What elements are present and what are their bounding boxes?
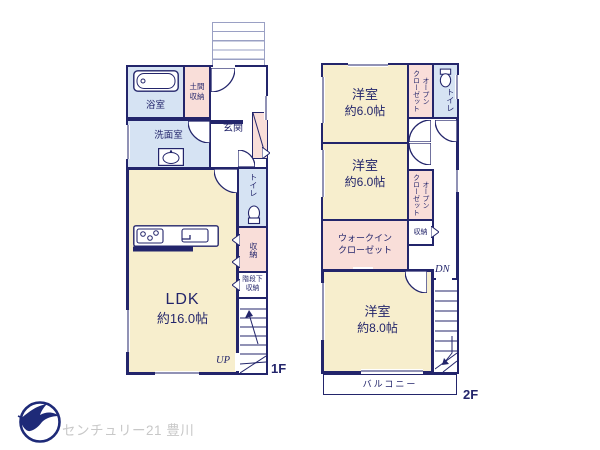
washbasin-icon [158, 148, 184, 166]
balcony-label: バルコニー [363, 379, 418, 391]
up-label: UP [216, 355, 230, 366]
room-entrance-label: 玄関 [213, 122, 253, 135]
room-bedroom1: 洋室 約6.0帖 [321, 63, 409, 144]
room-storage-1f-label: 収納 [247, 242, 258, 258]
hall-2f-door-arc [435, 120, 457, 142]
wall-entrance-hall [211, 120, 243, 124]
dn-label: DN [435, 264, 450, 275]
stairs-2f-treads [435, 281, 457, 372]
room-washroom-label: 洗面室 [154, 130, 183, 142]
stairs-1f [237, 297, 268, 375]
room-ldk: LDK 約16.0帖 [126, 167, 239, 375]
toilet-icon-1f [246, 204, 262, 225]
washroom-door-arc [188, 121, 210, 143]
room-storage-2f-label: 収納 [414, 228, 428, 237]
window-toilet-2f-right [455, 75, 459, 99]
bathtub-icon [133, 70, 179, 92]
room-bedroom3-label: 洋室 [364, 304, 390, 321]
company-name: センチュリー21 豊川 [62, 419, 194, 439]
room-open-closet2-label: オープン クローゼット [411, 174, 430, 216]
under-stairs-chevron [232, 279, 240, 291]
window-washroom-left [126, 125, 130, 159]
floorplan-2f: 洋室 約6.0帖 オープン クローゼット トイレ 洋室 約6.0帖 オープン ク… [321, 63, 459, 395]
room-under-stairs-label: 階段下 収納 [242, 276, 262, 294]
floor-label-1f: 1F [271, 361, 286, 376]
room-doma-storage-label: 土間 収納 [190, 82, 205, 102]
stairs-2f-entry-gap [436, 276, 452, 281]
toilet-icon-2f [438, 68, 453, 88]
bedroom1-door-arc [409, 120, 431, 142]
window-ldk-left [126, 310, 130, 352]
room-bedroom2-label: 洋室 [352, 158, 378, 175]
window-bedroom1-left [321, 77, 325, 123]
room-bedroom3-size: 約8.0帖 [357, 321, 398, 337]
shoe-closet-opening-chevron [262, 147, 270, 159]
room-ldk-label: LDK [129, 290, 236, 311]
room-toilet-2f-label: トイレ [444, 88, 455, 112]
room-bath-label: 浴室 [146, 100, 165, 112]
window-ldk-bottom [155, 371, 199, 375]
window-bedroom3-balcony [361, 369, 423, 374]
room-under-stairs-storage: 階段下 収納 [237, 271, 268, 299]
entrance-door-arc [211, 68, 235, 92]
room-open-closet1: オープン クローゼット [407, 63, 434, 119]
room-storage-1f: 収納 [237, 226, 268, 273]
floorplan-canvas: 浴室 土間 収納 玄関 洗面室 [0, 0, 600, 450]
storage-2f-opening-chevron [431, 226, 439, 238]
floorplan-1f: 浴室 土間 収納 玄関 洗面室 [126, 22, 268, 375]
window-bedroom3-left [321, 283, 325, 340]
bedroom2-door-arc [409, 143, 431, 165]
window-entrance-right [264, 96, 268, 120]
floor-label-2f: 2F [463, 387, 478, 402]
room-bedroom2: 洋室 約6.0帖 [321, 142, 409, 221]
storage-1f-chevron-2 [232, 256, 240, 268]
stairs-1f-treads [240, 300, 266, 373]
ldk-door-arc [214, 169, 238, 193]
room-bedroom1-label: 洋室 [352, 87, 378, 104]
room-walk-in-closet: ウォークイン クローゼット [321, 219, 409, 271]
stairs-1f-entry-gap [235, 353, 240, 371]
toilet-1f-door-arc [238, 150, 255, 167]
room-storage-2f: 収納 [407, 219, 434, 246]
bedroom3-door-arc [405, 271, 427, 293]
window-hall-right [455, 170, 459, 192]
balcony: バルコニー [323, 374, 457, 395]
room-bedroom1-size: 約6.0帖 [345, 104, 386, 120]
bird-logo-icon [16, 398, 64, 446]
room-open-closet1-label: オープン クローゼット [411, 70, 430, 112]
room-toilet-1f: トイレ [237, 167, 268, 228]
stairs-2f [432, 278, 459, 374]
room-ldk-size: 約16.0帖 [129, 311, 236, 328]
room-toilet-1f-label: トイレ [247, 173, 258, 197]
room-doma-storage: 土間 収納 [183, 65, 211, 119]
window-bedroom2-left [321, 150, 325, 197]
kitchen-counter-icon [133, 225, 219, 252]
window-bedroom1-top [348, 63, 388, 67]
room-bedroom2-size: 約6.0帖 [345, 175, 386, 191]
room-walk-in-closet-label: ウォークイン クローゼット [338, 233, 392, 256]
room-bath: 浴室 [126, 65, 185, 119]
room-open-closet2: オープン クローゼット [407, 169, 434, 221]
company-logo: センチュリー21 豊川 [16, 398, 276, 446]
storage-1f-chevron-1 [232, 234, 240, 246]
